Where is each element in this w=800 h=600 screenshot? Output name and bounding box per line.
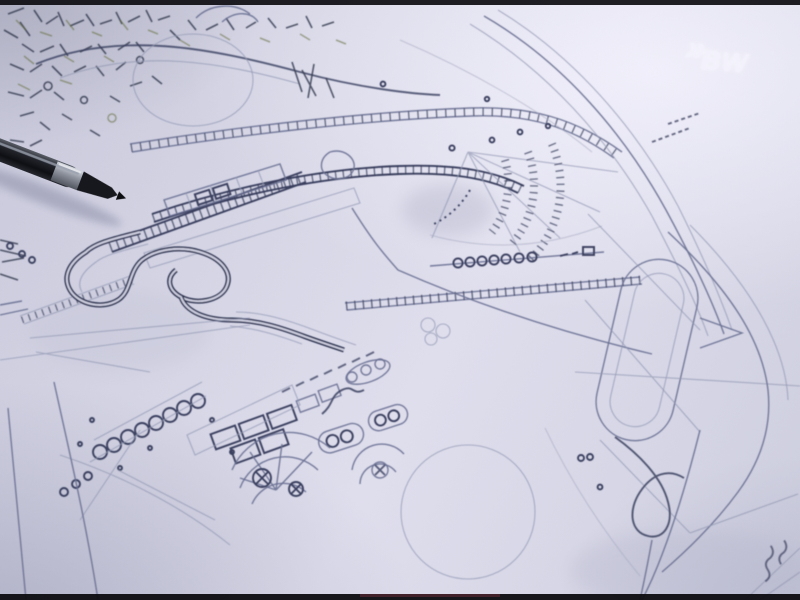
letterbox-top-bar — [0, 0, 800, 5]
broadcast-logo: » BW — [685, 31, 751, 72]
blueprint-drawing — [0, 0, 800, 600]
logo-text: BW — [700, 47, 749, 78]
letterbox-bottom-bar — [0, 594, 800, 600]
video-edge-artifact — [360, 594, 500, 597]
video-frame: » BW — [0, 0, 800, 600]
